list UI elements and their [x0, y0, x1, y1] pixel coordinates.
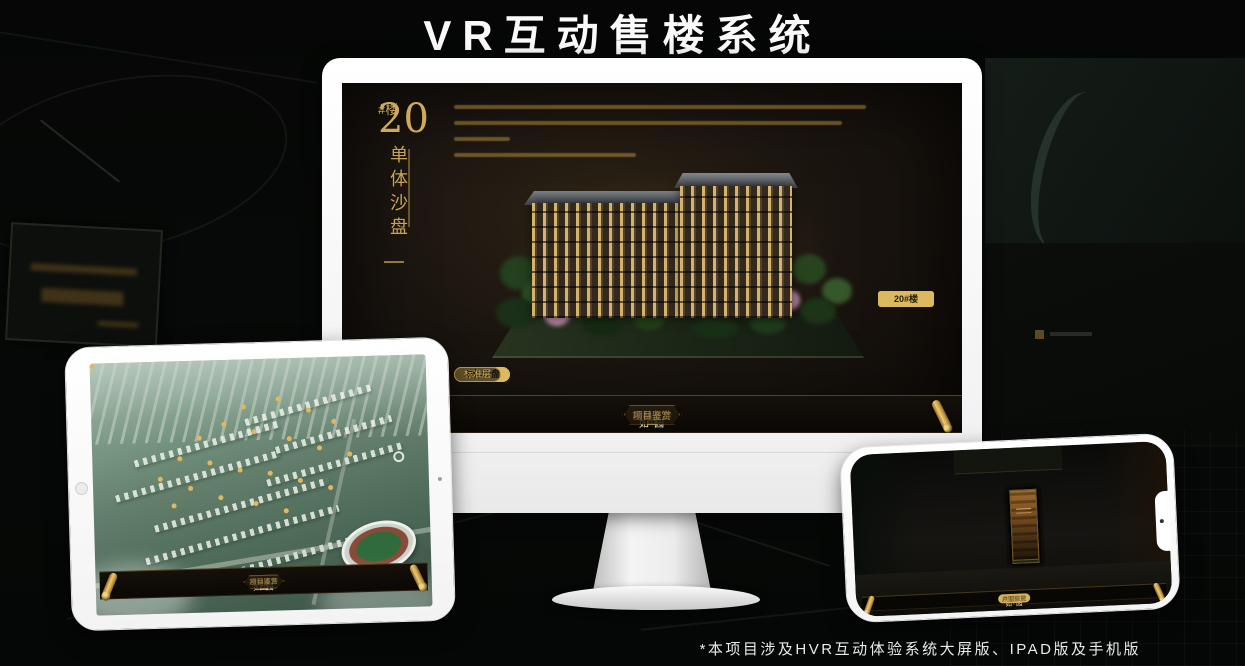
floor-heading-subtitle-bar: [408, 149, 410, 227]
phone-notch: [1154, 491, 1171, 552]
tree: [800, 298, 836, 324]
monitor-stand-base: [552, 586, 760, 610]
phone-mockup: 区位交通 三维沙盘 样板间VR 如·园 户型鉴赏 园林漫游 项目鉴赏: [839, 433, 1181, 624]
scroll-handle-icon[interactable]: [408, 563, 426, 590]
tablet-camera-icon: [438, 477, 442, 481]
scroll-handle-icon[interactable]: [101, 572, 118, 599]
tree: [792, 254, 826, 284]
scroll-handle-icon[interactable]: [930, 399, 952, 432]
bg-map-road: [0, 47, 304, 284]
nav-item-project-gallery-phone[interactable]: 项目鉴赏: [1000, 593, 1028, 603]
monitor-stand-neck: [592, 512, 712, 596]
tab-standard-floor[interactable]: 标准层: [454, 367, 501, 382]
bg-river: [1017, 84, 1124, 256]
scene-banner-showroom[interactable]: [1009, 489, 1039, 561]
bg-aerial-photo: [985, 58, 1245, 243]
tablet-mockup: 项目沙盘 单体沙盘 标准层 区位交通 三维沙盘 样板间VR 如·园 户型鉴赏 园…: [64, 337, 456, 632]
building-wing-left: [532, 203, 680, 318]
floor-number-suffix: #楼: [378, 99, 398, 118]
scene-banner-row: [1009, 490, 1012, 561]
tablet-app-screen: 项目沙盘 单体沙盘 标准层 区位交通 三维沙盘 样板间VR 如·园 户型鉴赏 园…: [90, 354, 433, 615]
footnote: *本项目涉及HVR互动体验系统大屏版、IPAD版及手机版: [700, 638, 1141, 659]
promo-poster: VR互动售楼系统 20#楼 单体沙盘: [0, 0, 1245, 666]
bg-map-road: [40, 119, 120, 182]
courtyard-canopy: [954, 446, 1062, 475]
building-3d-render: [492, 158, 872, 363]
tree: [692, 318, 738, 338]
phone-app-screen: 区位交通 三维沙盘 样板间VR 如·园 户型鉴赏 园林漫游 项目鉴赏: [850, 441, 1173, 617]
compass-icon: [393, 451, 404, 462]
nav-item-project-gallery[interactable]: 项目鉴赏: [624, 405, 680, 425]
bg-logo-mark: [1035, 330, 1044, 339]
floor-heading-vertical-title: 单体沙盘: [384, 145, 410, 241]
building-row: [154, 477, 329, 532]
tree: [496, 298, 536, 328]
building-row: [145, 505, 340, 566]
nav-item-project-gallery-tablet[interactable]: 项目鉴赏: [244, 574, 284, 589]
poster-title: VR互动售楼系统: [0, 2, 1245, 63]
bg-aerial-photo: [985, 243, 1245, 448]
bg-award-plaque: [5, 222, 163, 348]
building-wing-right: [680, 186, 792, 318]
bg-text-smudge: [1050, 332, 1092, 336]
phone-camera-icon: [1160, 519, 1164, 523]
floor-button-20[interactable]: 20#楼: [878, 291, 934, 307]
floor-heading-underline: [384, 261, 404, 263]
tablet-home-button[interactable]: [75, 482, 88, 495]
